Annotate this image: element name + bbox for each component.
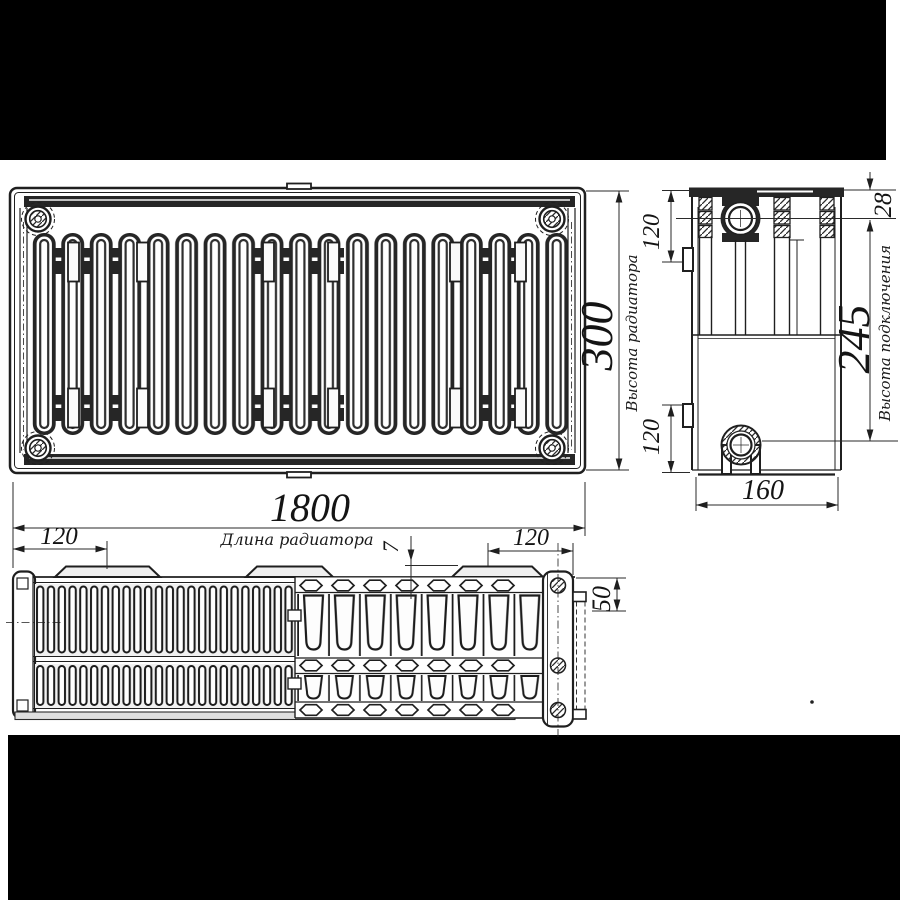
- bottom-view: [6, 543, 586, 737]
- mounting-pads: [55, 567, 543, 578]
- label-radiator-length: Длина радиатора: [219, 530, 373, 549]
- dim-panel-depth-text: 50: [587, 586, 616, 612]
- left-end-cap: [13, 572, 35, 719]
- dim-connection-text: 245: [828, 305, 879, 374]
- bracket-tab-bottom: [683, 404, 693, 427]
- paper-sliver-bottom-left: [0, 735, 8, 900]
- dim-height-text: 300: [571, 302, 622, 372]
- dim-side-top-text: 120: [639, 214, 665, 250]
- dim-bottom-left-text: 120: [40, 523, 78, 550]
- right-end-cap: [543, 543, 573, 737]
- dim-side-bottom-text: 120: [639, 419, 665, 455]
- front-view: [10, 184, 585, 478]
- drawing-canvas: 300 Высота радиатора 1800 Длина радиатор…: [0, 0, 900, 900]
- label-radiator-height: Высота радиатора: [623, 254, 641, 412]
- radiator-technical-drawing: 300 Высота радиатора 1800 Длина радиатор…: [0, 0, 900, 900]
- bracket-tab-top: [683, 248, 693, 271]
- coarse-grille: [288, 577, 543, 719]
- front-fins: [32, 233, 573, 435]
- dim-depth-text: 160: [742, 475, 784, 506]
- dim-collector-text: 28: [870, 192, 897, 218]
- dim-length-text: 1800: [270, 485, 350, 530]
- paper-speck: [810, 700, 814, 704]
- dim-gap-text: 7: [378, 541, 403, 553]
- label-connection-height: Высота подключения: [876, 245, 894, 422]
- fine-grille: [33, 584, 295, 709]
- paper-sliver-top-right: [886, 0, 900, 161]
- dim-bottom-right-text: 120: [513, 525, 549, 551]
